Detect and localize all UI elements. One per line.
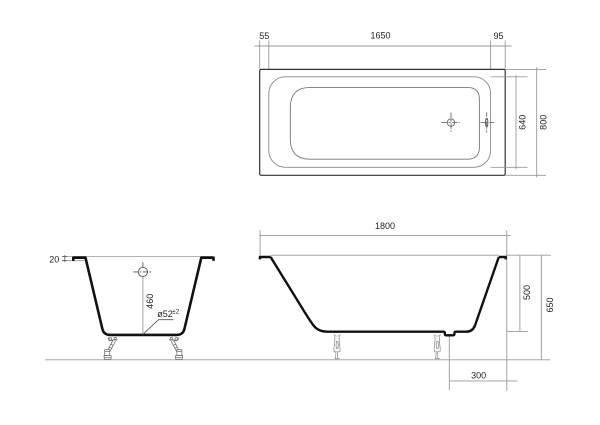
svg-text:1800: 1800 [375,221,395,231]
svg-text:640: 640 [517,115,527,130]
svg-text:460: 460 [145,294,155,309]
svg-text:20: 20 [49,255,59,265]
svg-text:±2: ±2 [172,308,179,315]
svg-text:55: 55 [259,31,269,41]
svg-text:ø52: ø52 [157,309,173,319]
svg-text:800: 800 [539,115,549,130]
svg-text:300: 300 [471,371,486,381]
svg-text:95: 95 [493,31,503,41]
svg-text:1650: 1650 [370,31,390,41]
svg-text:650: 650 [545,297,555,312]
svg-text:500: 500 [522,285,532,300]
